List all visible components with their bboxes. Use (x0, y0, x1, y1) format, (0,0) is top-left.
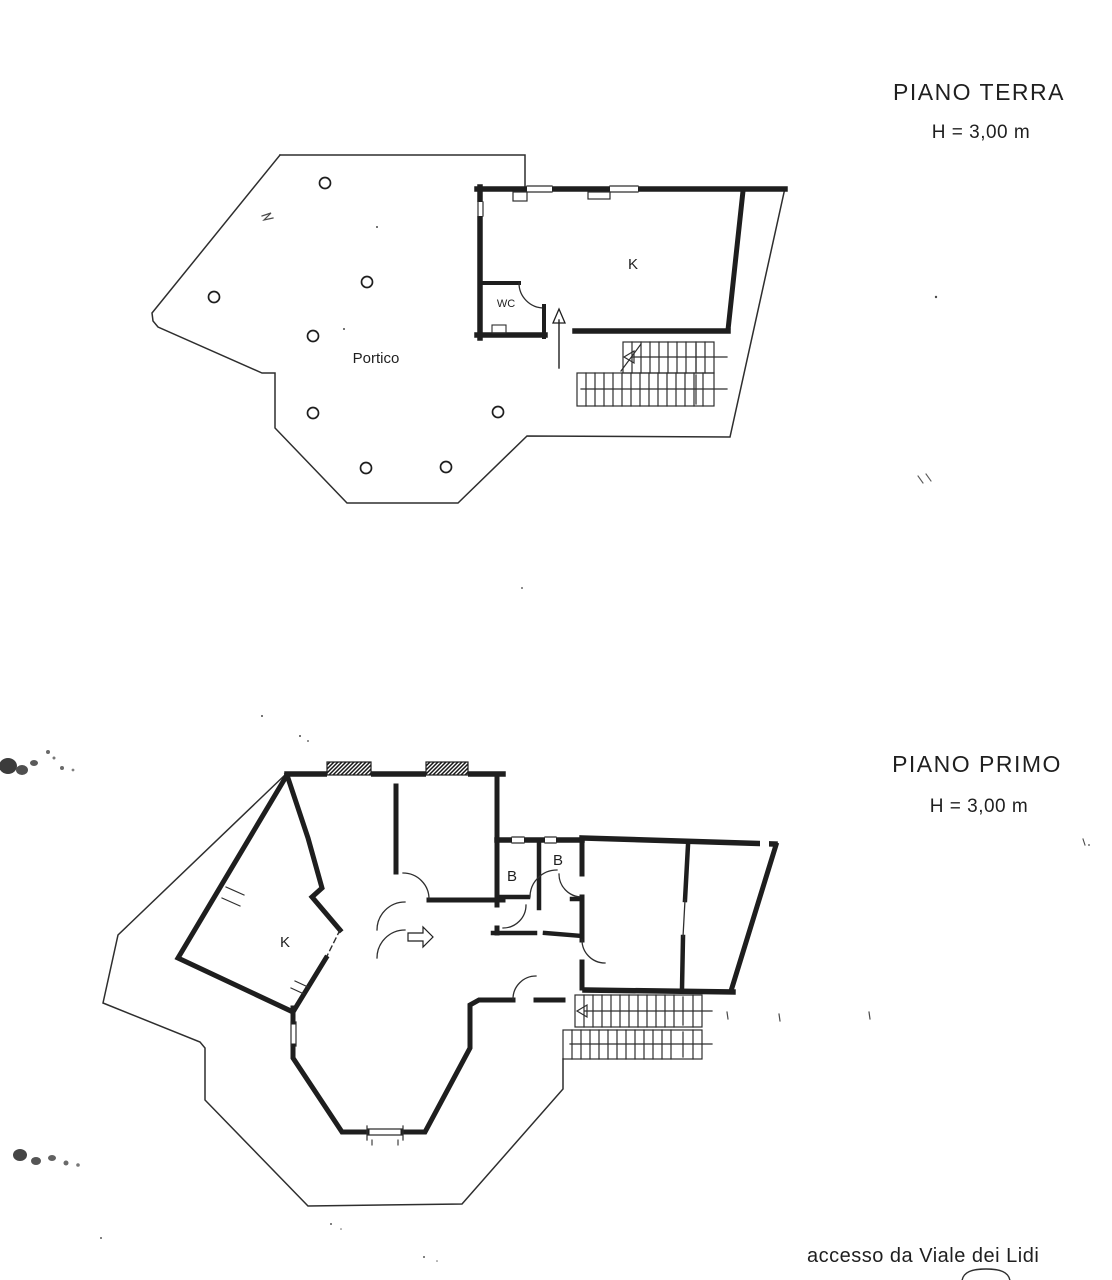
scan-speck (1088, 844, 1090, 846)
scanned-floorplan-page: PIANO TERRA H = 3,00 m Portico K WC PIAN… (0, 0, 1112, 1280)
window-sill-hatched-1 (327, 762, 371, 775)
column (493, 407, 504, 418)
wc-fixture (492, 325, 506, 333)
ground-floor-plan (152, 155, 937, 503)
label-kitchen-first: K (280, 934, 290, 951)
hall-direction-arrow (408, 927, 433, 947)
window-gap (610, 183, 638, 195)
first-stairs (563, 995, 712, 1059)
portico-columns (209, 178, 504, 474)
window-gap (760, 834, 769, 847)
column (308, 408, 319, 419)
door-arc-corridor (582, 940, 605, 963)
floor-plan-drawing: PIANO TERRA H = 3,00 m Portico K WC PIAN… (0, 0, 1112, 1280)
column (441, 462, 452, 473)
wall-bay (293, 1000, 563, 1132)
wall-kitchen-se (293, 958, 326, 1012)
scan-marks (727, 1012, 870, 1021)
label-kitchen-ground: K (628, 256, 638, 273)
door-arc-living (513, 976, 536, 999)
wall-rightroom-bottom (585, 990, 733, 992)
scan-speck (376, 226, 378, 228)
scan-speck (261, 715, 263, 717)
first-floor-height: H = 3,00 m (930, 796, 1028, 817)
wall-corridor (493, 933, 582, 936)
partition-window (683, 900, 685, 937)
ground-stairs (577, 342, 727, 406)
sill-box (588, 192, 610, 199)
footer-arc (962, 1269, 1010, 1280)
kitchen-window-gap (224, 889, 242, 903)
column (308, 331, 319, 342)
wall-kitchen-inner (287, 775, 340, 930)
first-floor-title: PIANO PRIMO (892, 751, 1062, 777)
column (361, 463, 372, 474)
footer-access-note: accesso da Viale dei Lidi (807, 1245, 1039, 1267)
label-portico: Portico (353, 350, 400, 367)
window-gap (527, 183, 552, 195)
door-arc-bath2 (559, 874, 582, 897)
hall-double-door-arcs (377, 902, 405, 958)
wall-rightroom-top (582, 838, 775, 844)
label-bath-1: B (507, 868, 517, 885)
door-arc-bedroom1 (403, 873, 429, 899)
sill-box (513, 192, 527, 201)
scan-mark (918, 474, 931, 483)
wall-rightroom-partition (682, 845, 688, 989)
door-arc-bath1 (530, 870, 557, 897)
column (209, 292, 220, 303)
scan-speck (935, 296, 937, 298)
door-arc-hall (503, 905, 526, 928)
scan-mark (1083, 839, 1085, 845)
bay-window-bottom (367, 1126, 403, 1140)
ground-floor-title: PIANO TERRA (893, 79, 1065, 105)
scan-speck (343, 328, 345, 330)
scan-mark (262, 213, 273, 220)
label-bath-2: B (553, 852, 563, 869)
scan-speck (307, 740, 309, 742)
terrace-outline (103, 773, 563, 1206)
column (320, 178, 331, 189)
bay-window-left (291, 1022, 296, 1046)
wc-door-arc (519, 283, 544, 308)
portico-outline-top (280, 155, 525, 187)
window-gap (545, 834, 556, 846)
ground-wall-right-slant (728, 191, 743, 330)
ground-floor-height: H = 3,00 m (932, 122, 1030, 143)
window-sill-hatched-2 (426, 762, 468, 775)
label-wc: WC (497, 298, 515, 310)
window-gap (512, 834, 524, 846)
kitchen-door-dashed (326, 930, 340, 958)
scan-speck (299, 735, 301, 737)
column (362, 277, 373, 288)
first-floor-plan (103, 715, 1090, 1206)
scanner-noise (0, 587, 523, 1262)
wall-rightroom-slant (731, 845, 776, 991)
bay-window-ticks (372, 1140, 398, 1145)
